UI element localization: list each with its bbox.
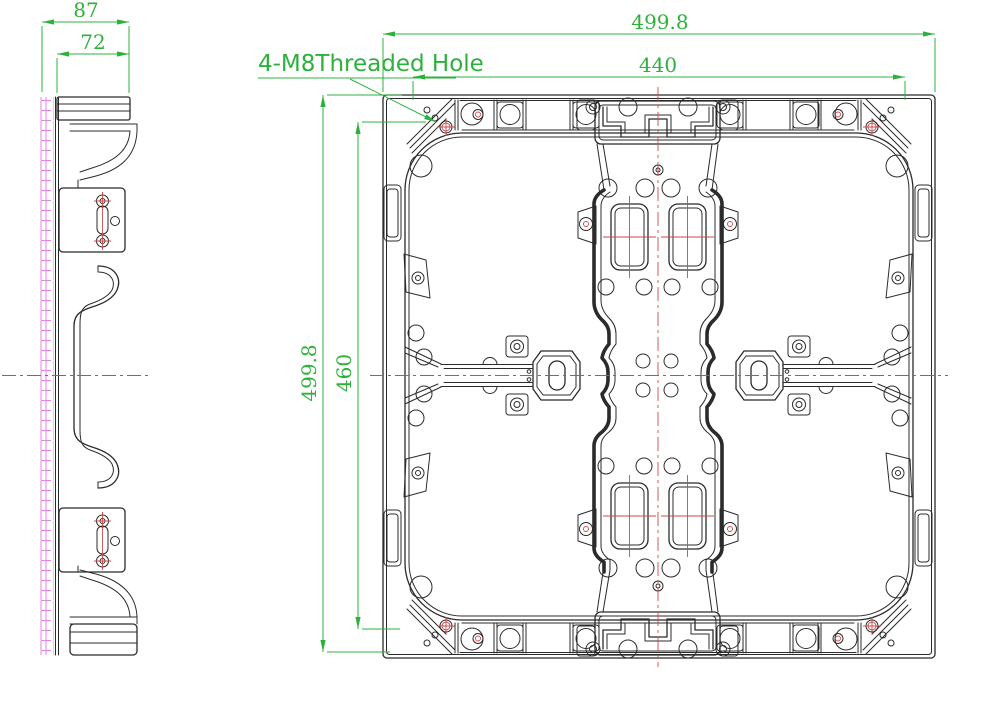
- cad-drawing-sheet: 87 72 499.8 440 499.8 460: [0, 0, 992, 713]
- bottom-bracket: [70, 566, 137, 624]
- top-bracket: [70, 124, 137, 188]
- frame-outer-inner-line: [387, 99, 932, 655]
- bottom-handle-assembly: [577, 559, 738, 658]
- dim-text-width: 499.8: [631, 10, 688, 34]
- dim-flange-depth: 72: [57, 30, 129, 93]
- dim-hole-spacing-width: 440: [413, 53, 905, 100]
- dim-text-height: 499.8: [297, 344, 321, 401]
- top-flange: [57, 97, 130, 120]
- handle-profile: [74, 266, 119, 488]
- corner-top-right: [835, 99, 911, 177]
- bottom-flange: [70, 624, 137, 655]
- dim-text-440: 440: [639, 53, 677, 77]
- dimensions: 87 72 499.8 440 499.8 460: [42, 0, 935, 652]
- leader-line: [350, 79, 436, 122]
- frame-opening-inner-line: [409, 137, 909, 616]
- top-handle-assembly: [577, 98, 738, 197]
- corner-bottom-right: [835, 576, 911, 654]
- dim-text-460: 460: [332, 354, 356, 392]
- cad-drawing-svg: 87 72 499.8 440 499.8 460: [0, 0, 992, 713]
- cabinet-rear-view: [383, 95, 935, 658]
- annotation-text: 4-M8Threaded Hole: [258, 51, 484, 77]
- frame-outer: [383, 95, 935, 658]
- dim-text-87: 87: [73, 0, 98, 22]
- corner-bottom-left: [407, 576, 483, 654]
- lower-mounting-plate: [59, 508, 125, 572]
- upper-mounting-plate: [59, 188, 125, 252]
- threaded-hole-annotation: 4-M8Threaded Hole: [258, 51, 484, 122]
- plate-hole: [111, 217, 120, 226]
- led-module-hatch: [40, 97, 54, 655]
- frame-opening: [405, 133, 913, 620]
- centerlines: [2, 87, 948, 667]
- center-handles: [577, 98, 738, 658]
- corner-details: [407, 99, 911, 654]
- corner-top-left: [407, 99, 483, 177]
- plate-hole: [111, 537, 120, 546]
- dim-text-72: 72: [80, 30, 105, 54]
- cabinet-wall: [56, 97, 59, 655]
- side-profile-view: [40, 97, 137, 655]
